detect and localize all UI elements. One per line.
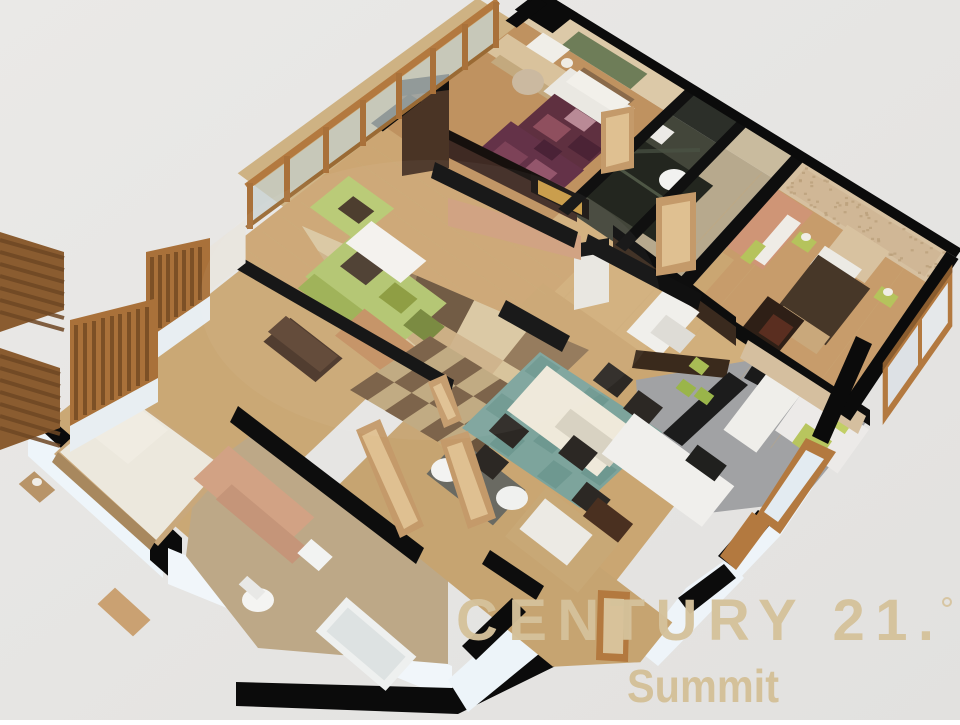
svg-text:Summit: Summit (627, 660, 779, 712)
svg-text:CENTURY 21.: CENTURY 21. (456, 588, 934, 653)
